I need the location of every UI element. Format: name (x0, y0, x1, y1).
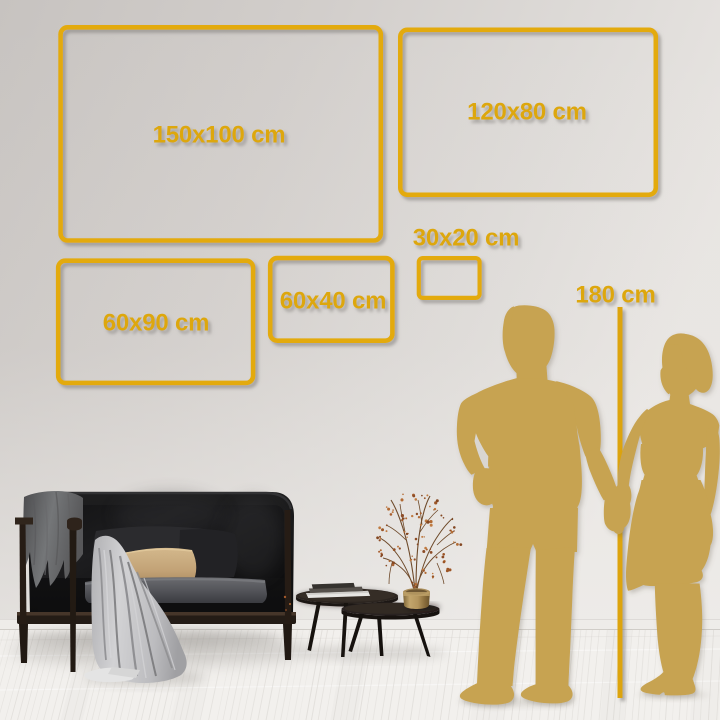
svg-text:150x100 cm: 150x100 cm (153, 122, 286, 149)
svg-text:120x80 cm: 120x80 cm (467, 99, 587, 126)
svg-text:60x90 cm: 60x90 cm (103, 310, 210, 337)
svg-text:60x40 cm: 60x40 cm (280, 288, 387, 315)
svg-text:30x20 cm: 30x20 cm (413, 225, 520, 252)
svg-text:180 cm: 180 cm (575, 282, 655, 309)
